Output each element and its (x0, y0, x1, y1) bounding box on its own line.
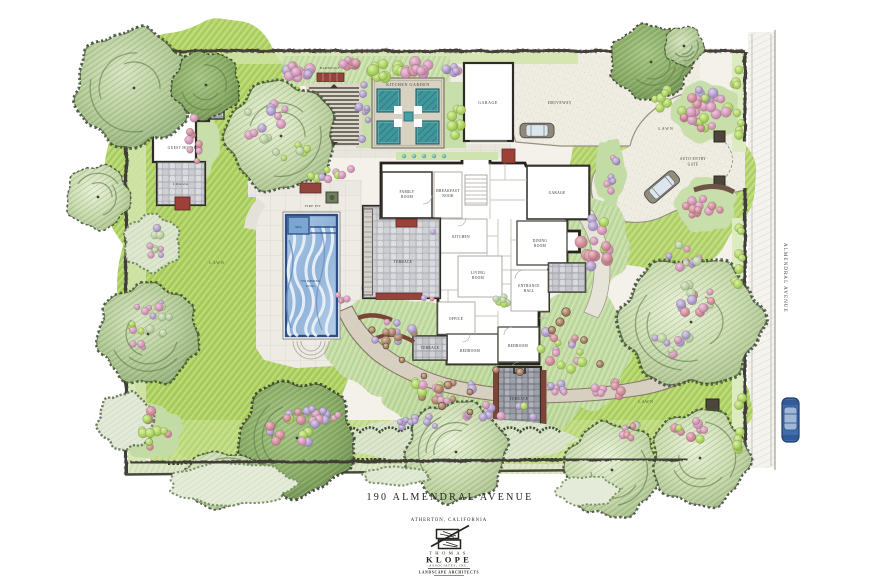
svg-text:FAMILY: FAMILY (400, 190, 415, 194)
svg-text:DRIVEWAY: DRIVEWAY (548, 101, 572, 105)
svg-text:TERRACE: TERRACE (421, 346, 440, 350)
svg-text:SWIMMING: SWIMMING (301, 279, 321, 283)
svg-text:ALMENDRAL AVENUE: ALMENDRAL AVENUE (782, 243, 787, 313)
svg-text:SPA: SPA (295, 225, 302, 229)
svg-text:ATHERTON, CALIFORNIA: ATHERTON, CALIFORNIA (411, 518, 487, 523)
svg-text:ROOM: ROOM (472, 276, 484, 280)
svg-text:190 ALMENDRAL AVENUE: 190 ALMENDRAL AVENUE (366, 492, 533, 503)
svg-text:FIRE PIT: FIRE PIT (305, 204, 322, 208)
svg-text:ROOM: ROOM (401, 195, 413, 199)
svg-text:TERRACE: TERRACE (394, 260, 413, 264)
svg-text:BREAKFAST: BREAKFAST (436, 189, 460, 193)
svg-text:LAWN: LAWN (638, 399, 653, 404)
svg-text:TERRACE: TERRACE (510, 397, 529, 401)
svg-text:NOOK: NOOK (442, 194, 454, 198)
svg-text:KITCHEN GARDEN: KITCHEN GARDEN (386, 82, 430, 87)
svg-text:ROOM: ROOM (534, 244, 546, 248)
svg-text:LANDSCAPE ARCHITECTS: LANDSCAPE ARCHITECTS (419, 571, 479, 575)
svg-text:LAWN: LAWN (209, 260, 224, 265)
svg-text:BEDROOM: BEDROOM (508, 344, 529, 348)
svg-text:LOGGIA: LOGGIA (173, 182, 189, 186)
svg-text:POOL: POOL (306, 284, 316, 288)
svg-text:LIVING: LIVING (471, 271, 485, 275)
svg-text:GATE: GATE (688, 163, 699, 167)
svg-text:HALL: HALL (524, 289, 535, 293)
svg-text:LAWN: LAWN (658, 126, 673, 131)
svg-text:BARBEQUE: BARBEQUE (320, 66, 340, 70)
svg-text:AUTO ENTRY: AUTO ENTRY (680, 157, 707, 161)
svg-text:ENTRANCE: ENTRANCE (518, 284, 540, 288)
svg-text:OFFICE: OFFICE (449, 317, 464, 321)
svg-text:DINING: DINING (533, 239, 548, 243)
svg-text:GARAGE: GARAGE (549, 191, 566, 195)
svg-text:GARAGE: GARAGE (478, 100, 498, 105)
svg-text:KITCHEN: KITCHEN (452, 235, 470, 239)
svg-text:BEDROOM: BEDROOM (460, 349, 481, 353)
